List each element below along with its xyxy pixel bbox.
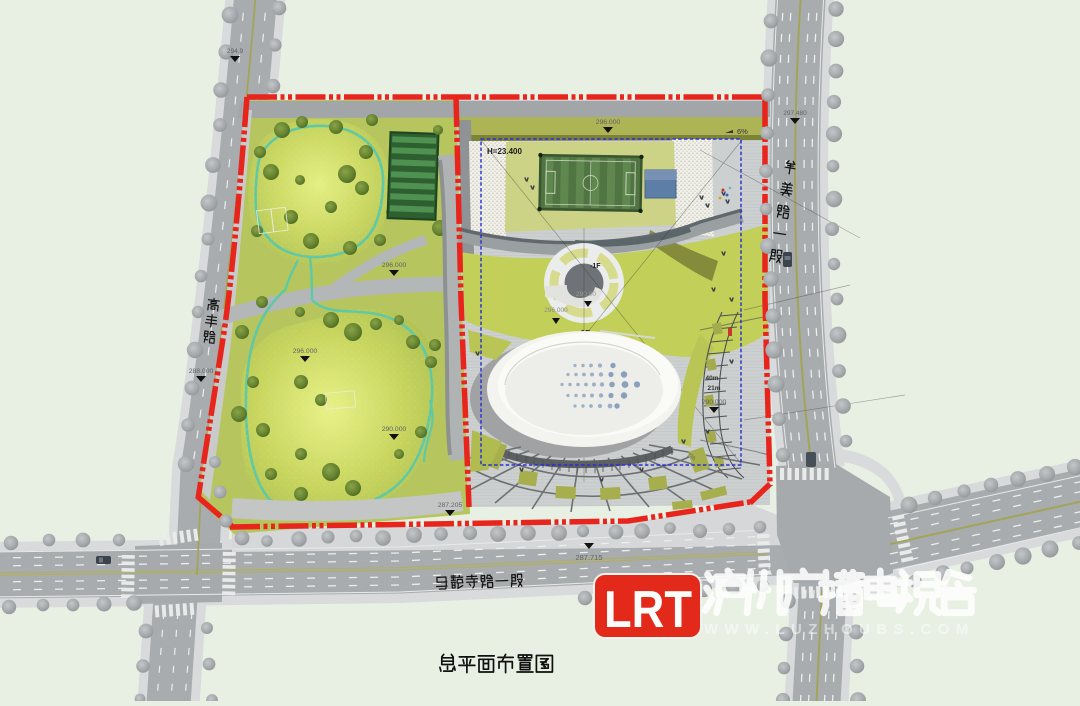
- svg-text:40m: 40m: [705, 375, 718, 382]
- svg-text:296.000: 296.000: [544, 307, 568, 314]
- svg-text:294.9: 294.9: [227, 48, 244, 55]
- svg-text:296.000: 296.000: [293, 348, 318, 355]
- svg-text:287.205: 287.205: [438, 502, 463, 509]
- svg-text:290.00: 290.00: [576, 291, 596, 298]
- svg-text:296.000: 296.000: [382, 262, 407, 269]
- svg-text:287.715: 287.715: [575, 553, 602, 562]
- svg-text:WWW.LUZHOUBS.COM: WWW.LUZHOUBS.COM: [704, 621, 975, 638]
- svg-text:-1F: -1F: [590, 263, 601, 270]
- svg-text:6%: 6%: [737, 127, 748, 136]
- svg-text:290.000: 290.000: [382, 426, 407, 433]
- svg-text:LRT: LRT: [604, 581, 692, 639]
- svg-text:297.480: 297.480: [783, 110, 807, 117]
- svg-text:21m: 21m: [707, 385, 720, 392]
- svg-text:290.000: 290.000: [702, 399, 727, 406]
- svg-text:288.000: 288.000: [189, 368, 214, 375]
- svg-text:296.000: 296.000: [596, 119, 621, 126]
